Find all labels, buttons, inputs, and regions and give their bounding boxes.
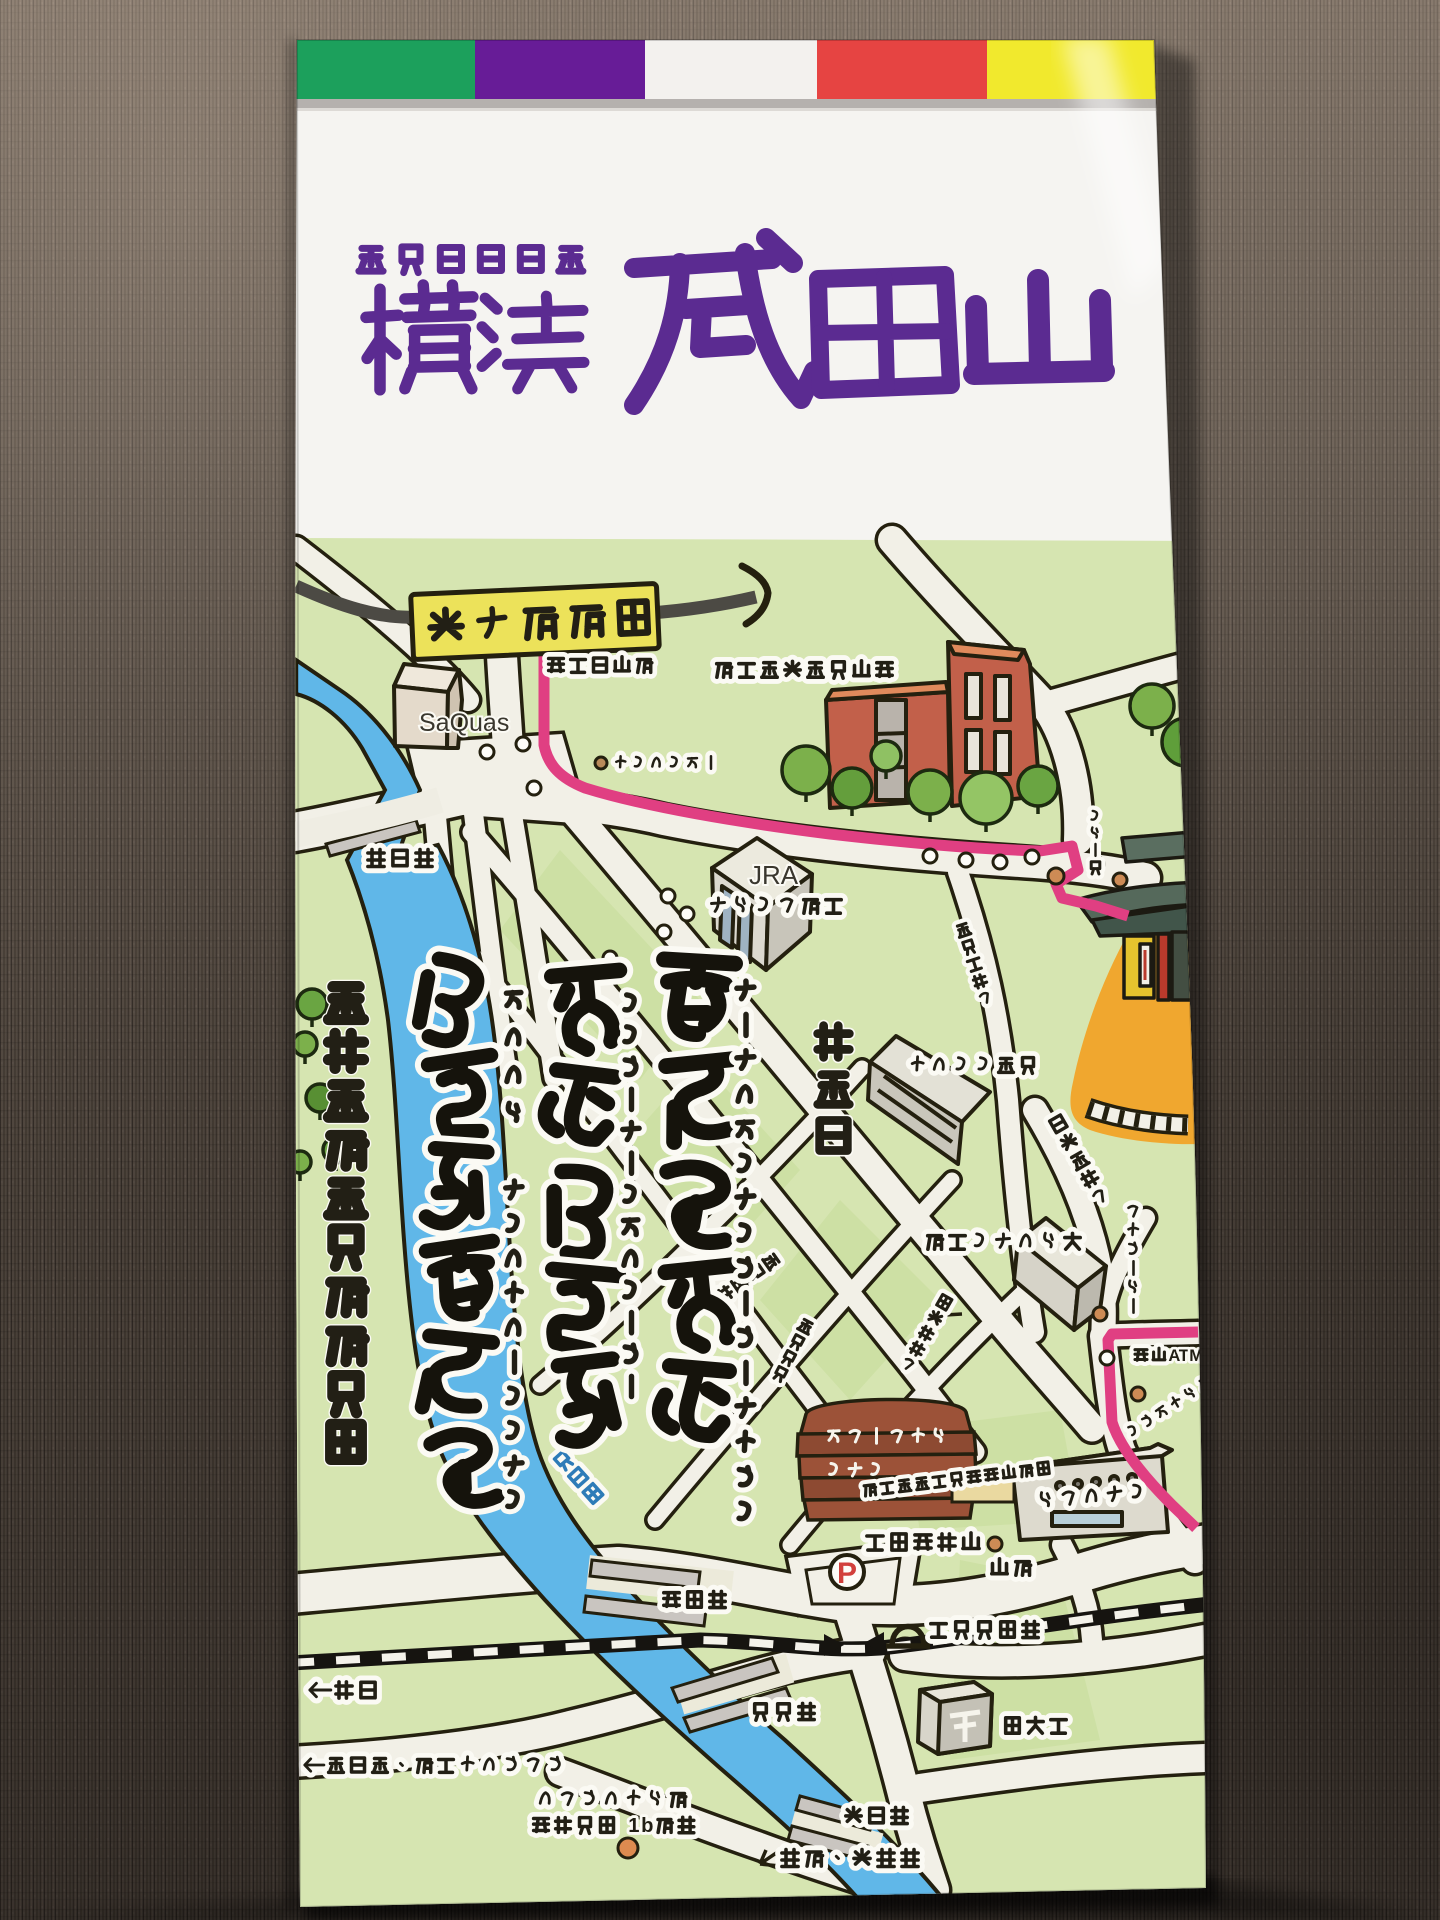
svg-text:SaQuas: SaQuas [419,709,509,737]
svg-text:P: P [837,1557,857,1590]
svg-text:JRA: JRA [749,860,799,890]
svg-text:T: T [1179,1346,1189,1365]
svg-text:1: 1 [628,1815,639,1837]
svg-text:b: b [641,1815,653,1837]
